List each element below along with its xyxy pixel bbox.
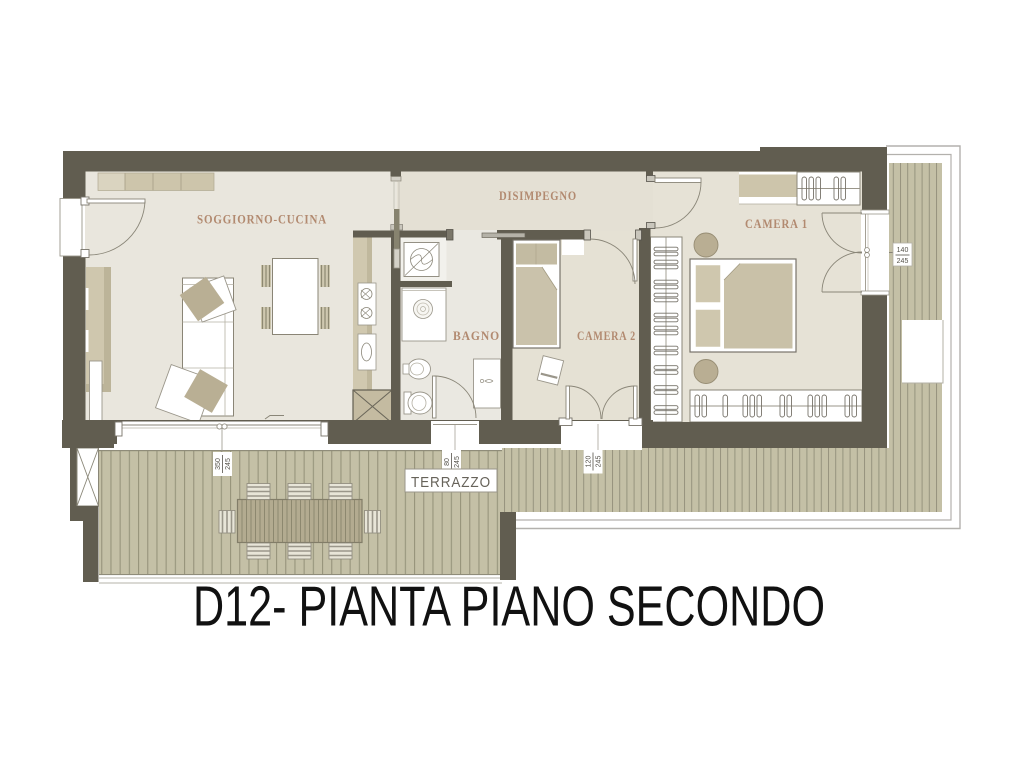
svg-text:BAGNO: BAGNO [453,328,500,343]
svg-text:80: 80 [444,458,451,466]
svg-text:245: 245 [897,258,909,265]
svg-text:CAMERA 2: CAMERA 2 [577,328,636,343]
svg-text:TERRAZZO: TERRAZZO [411,474,491,491]
svg-text:245: 245 [225,458,232,470]
svg-text:350: 350 [215,458,222,470]
svg-text:D12- PIANTA PIANO SECONDO: D12- PIANTA PIANO SECONDO [193,575,825,639]
svg-text:SOGGIORNO-CUCINA: SOGGIORNO-CUCINA [197,212,327,227]
svg-text:120: 120 [586,456,593,468]
svg-text:DISIMPEGNO: DISIMPEGNO [499,188,577,203]
svg-text:245: 245 [596,456,603,468]
svg-text:140: 140 [897,247,909,254]
svg-text:CAMERA 1: CAMERA 1 [745,216,808,231]
svg-text:245: 245 [454,456,461,468]
